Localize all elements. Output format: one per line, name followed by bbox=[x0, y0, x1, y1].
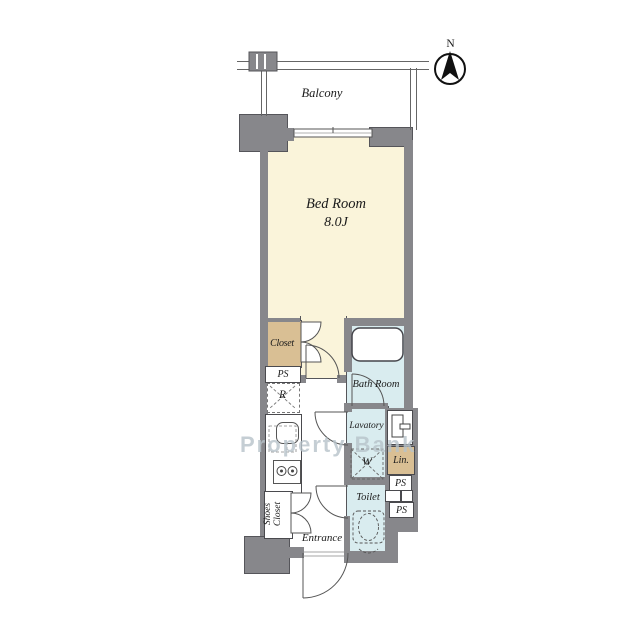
watermark-text: Property Bank bbox=[240, 432, 416, 458]
bedroom-size-label: 8.0J bbox=[268, 215, 404, 230]
balcony-left-edge bbox=[261, 69, 267, 116]
bedroom-door-jamb-right bbox=[337, 375, 346, 383]
bathroom-label: Bath Room bbox=[346, 379, 406, 391]
bedroom-alcove-floor bbox=[300, 316, 347, 379]
pipe-shaft-bottom: PS bbox=[389, 502, 414, 518]
pipe-shaft-kitchen: PS bbox=[265, 366, 301, 383]
bottom-left-block bbox=[245, 537, 289, 573]
ps-top-label: PS bbox=[277, 369, 288, 380]
ps-bottom-label: PS bbox=[396, 505, 407, 516]
top-wall-left bbox=[266, 128, 294, 141]
bottom-wall-toilet bbox=[344, 551, 398, 563]
floor-plan: PS Lin. PS PS bbox=[0, 0, 640, 640]
lav-toilet-wall bbox=[344, 477, 388, 485]
closet-label: Closet bbox=[264, 338, 300, 349]
ps-mid-label: PS bbox=[395, 478, 406, 489]
bedroom-floor bbox=[264, 135, 410, 327]
entrance-wall-stub bbox=[288, 547, 304, 558]
shoes-closet-label-line1: Shoes bbox=[263, 503, 273, 525]
stove bbox=[273, 460, 301, 484]
hall-bath-wall bbox=[344, 326, 352, 372]
entrance-label: Entrance bbox=[296, 532, 348, 544]
shoes-closet-double-door bbox=[291, 493, 311, 533]
toilet-label: Toilet bbox=[346, 492, 390, 504]
north-compass-icon bbox=[435, 51, 465, 84]
balcony-label: Balcony bbox=[272, 87, 372, 101]
closet-top-wall bbox=[260, 318, 300, 322]
pipe-shaft-mid: PS bbox=[389, 475, 412, 491]
entrance-door bbox=[303, 552, 348, 598]
lavatory-label: Lavatory bbox=[346, 421, 387, 431]
north-label: N bbox=[444, 38, 457, 51]
bath-top-wall bbox=[344, 318, 412, 326]
right-wall bbox=[404, 140, 413, 410]
bedroom-label: Bed Room bbox=[268, 197, 404, 213]
toilet-door bbox=[316, 486, 348, 518]
bathroom-floor bbox=[346, 322, 409, 410]
shoes-closet-label-line2: Closet bbox=[273, 502, 283, 526]
shoes-closet-label: Shoes Closet bbox=[263, 488, 291, 540]
refrigerator-label: R bbox=[267, 389, 298, 402]
lavatory-top-wall bbox=[344, 403, 388, 409]
balcony-right-edge bbox=[410, 68, 417, 130]
service-box-small-2 bbox=[401, 490, 413, 502]
